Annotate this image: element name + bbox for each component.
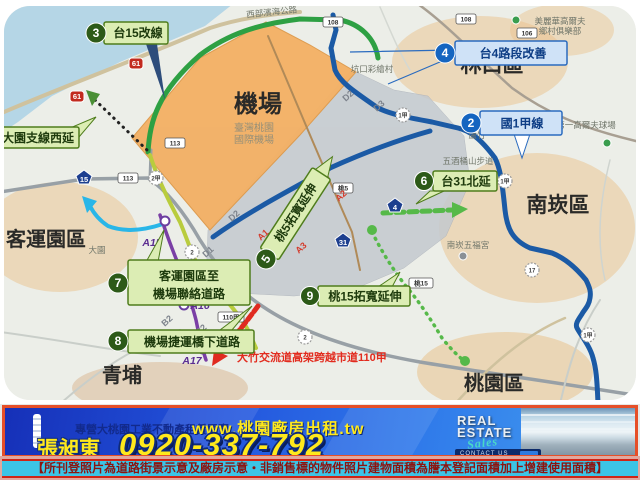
real-estate-logo: REAL ESTATE Sales — [457, 415, 512, 448]
label-qingpu: 青埔 — [102, 363, 142, 387]
map-canvas: 113 113 110 110甲 108 108 108 106 桃5 桃15 … — [4, 6, 636, 400]
shield-flower: 17 — [525, 263, 539, 277]
photo-beam — [521, 414, 635, 416]
label-nankan: 南崁區 — [527, 193, 590, 217]
label-airport: 機場 — [234, 91, 282, 118]
label-golf-club: 美麗華高爾夫 — [534, 16, 586, 26]
shield-flower: 1甲 — [498, 174, 512, 188]
callout-number: 6 — [421, 174, 428, 188]
callout-label: 大園支線西延 — [4, 130, 75, 145]
shield-flower: 2 — [185, 245, 199, 259]
callout-number: 4 — [442, 46, 449, 60]
label-dayuan: 大園 — [88, 245, 105, 255]
shield-61: 61 — [70, 91, 84, 102]
label-trail: 五酒桶山步道 — [442, 156, 494, 166]
shield-113: 113 — [170, 141, 181, 148]
shield-text: 61 — [73, 92, 81, 101]
label-taoyuan: 桃園區 — [464, 372, 524, 395]
shield-text: 15 — [80, 175, 88, 184]
callout-label: 台4路段改善 — [480, 46, 547, 61]
label-golf-club: 鄉村俱樂部 — [539, 26, 582, 36]
callout-label: 客運園區至 — [158, 268, 219, 283]
shield-106: 106 — [522, 31, 533, 38]
shield-tao15: 桃15 — [414, 279, 428, 288]
label-keyun: 客運園區 — [5, 227, 86, 251]
shield-flower: 2 — [298, 330, 312, 344]
route-shield: 108 — [323, 17, 343, 27]
shield-flower: 1甲 — [396, 108, 410, 122]
station-marker — [161, 217, 170, 226]
shield-61: 61 — [129, 58, 143, 69]
shield-text: 31 — [339, 238, 347, 247]
shield-text: 1甲 — [398, 112, 407, 120]
route-shield: 113 — [118, 173, 138, 183]
route-endpoint-dot — [367, 225, 377, 235]
agent-name: 張昶東 — [37, 433, 100, 458]
route-shield: 106 — [517, 28, 537, 38]
callout-label: 台31北延 — [441, 174, 491, 189]
shield-113: 113 — [123, 176, 134, 183]
shield-text: 2甲 — [151, 175, 160, 183]
shield-text: 61 — [132, 59, 140, 68]
disclaimer-text: 【所刊登照片為道路街景示意及廠房示意‧非銷售標的物件照片建物面積為謄本登記面積加… — [2, 459, 638, 478]
callout-label: 機場捷運橋下道路 — [144, 334, 241, 349]
photo-beam — [521, 421, 635, 423]
factory-photo — [521, 408, 635, 455]
label-airport-sub: 臺灣桃園 — [234, 121, 274, 134]
poi-pin-icon — [512, 16, 520, 24]
callout-label: 桃15拓寬延伸 — [328, 289, 401, 304]
shield-flower: 2甲 — [149, 171, 163, 185]
callout-number: 7 — [115, 276, 122, 290]
shield-text: 17 — [529, 269, 536, 275]
label-golf-course: 第一高爾夫球場 — [556, 120, 616, 130]
callout-number: 2 — [468, 116, 475, 130]
shield-text: 1甲 — [500, 178, 509, 186]
route-shield: 桃15 — [409, 278, 433, 288]
map-frame: 113 113 110 110甲 108 108 108 106 桃5 桃15 … — [0, 0, 640, 404]
shield-text: 1甲 — [583, 332, 592, 340]
route-shield: 113 — [165, 138, 185, 148]
shield-108: 108 — [461, 17, 472, 24]
shield-108: 108 — [328, 20, 339, 27]
label-airport-sub: 國際機場 — [234, 133, 274, 146]
phone-number[interactable]: 0920-337-792 — [119, 427, 324, 458]
label-village: 坑口彩繪村 — [351, 64, 394, 74]
callout-label: 國1甲線 — [501, 116, 544, 131]
callout-label: 台15改線 — [113, 25, 162, 40]
callout-number: 3 — [93, 26, 100, 40]
ad-banner[interactable]: 專營大桃園工業不動產租賃買賣 www.桃園廠房出租.tw 張昶東 0920-33… — [2, 405, 638, 458]
shield-flower: 1甲 — [581, 328, 595, 342]
callout-number: 9 — [307, 289, 314, 303]
station-label-a17: A17 — [181, 355, 202, 367]
callout-number: 8 — [115, 334, 122, 348]
poi-pin-icon — [603, 139, 611, 147]
label-temple: 南崁五福宮 — [447, 240, 490, 250]
route-shield: 108 — [456, 14, 476, 24]
route-endpoint-dot — [460, 356, 470, 366]
photo-beam — [521, 428, 635, 430]
red-note-110jia: 大竹交流道高架跨越市道110甲 — [237, 350, 387, 364]
road-plan-map: 113 113 110 110甲 108 108 108 106 桃5 桃15 … — [4, 6, 636, 400]
poi-pin-icon — [459, 252, 467, 260]
callout-label: 機場聯絡道路 — [153, 286, 226, 301]
